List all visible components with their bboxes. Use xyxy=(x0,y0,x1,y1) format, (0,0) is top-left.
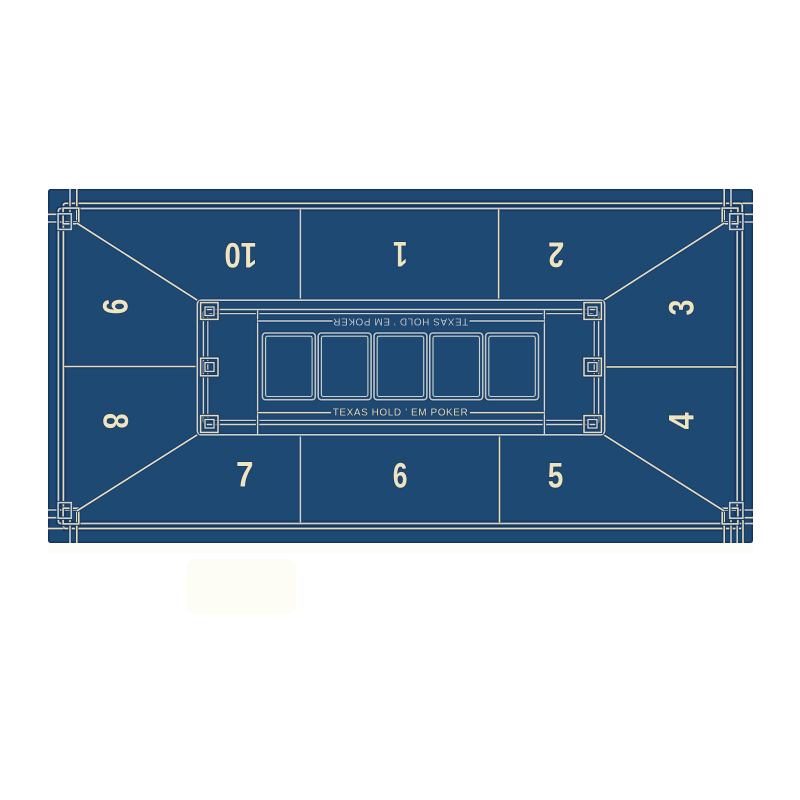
svg-text:5: 5 xyxy=(548,456,564,496)
svg-text:9: 9 xyxy=(95,299,135,315)
svg-text:7: 7 xyxy=(236,456,254,495)
svg-text:4: 4 xyxy=(662,412,701,430)
svg-text:6: 6 xyxy=(393,456,408,495)
svg-text:10: 10 xyxy=(224,236,257,275)
svg-text:2: 2 xyxy=(548,235,564,274)
svg-text:TEXAS HOLD ’ EM POKER: TEXAS HOLD ’ EM POKER xyxy=(333,316,468,327)
svg-text:TEXAS HOLD ’ EM POKER: TEXAS HOLD ’ EM POKER xyxy=(333,407,468,418)
svg-text:8: 8 xyxy=(96,413,135,429)
svg-text:3: 3 xyxy=(662,300,701,316)
svg-text:1: 1 xyxy=(393,234,407,274)
